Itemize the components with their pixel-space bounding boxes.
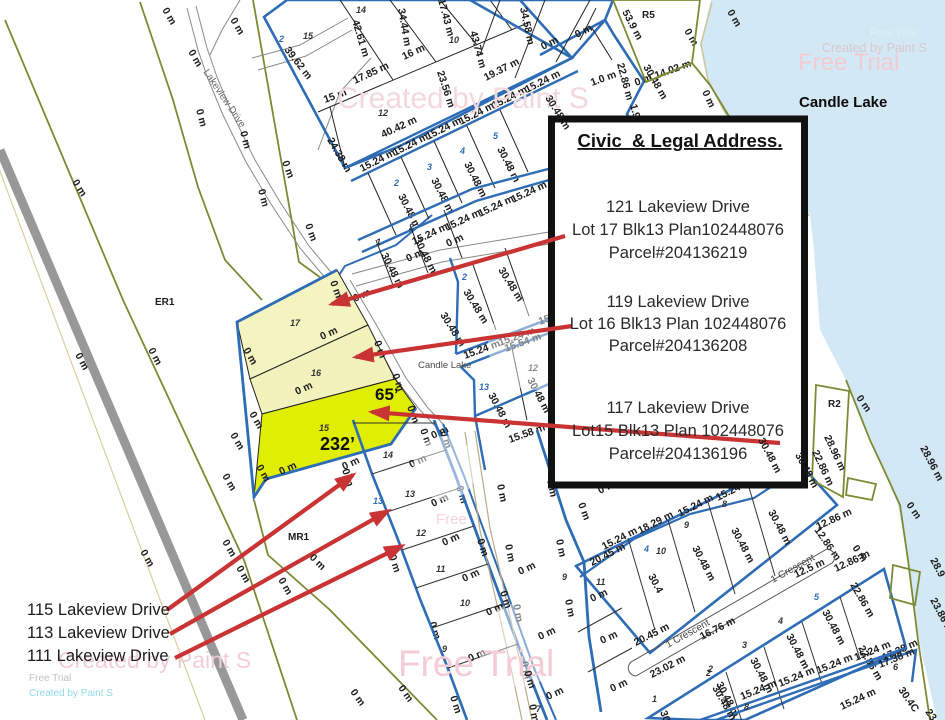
svg-text:111 Lakeview Drive: 111 Lakeview Drive xyxy=(27,647,169,665)
svg-text:Free Trial: Free Trial xyxy=(798,49,899,76)
svg-text:Created by Paint S: Created by Paint S xyxy=(29,688,113,699)
svg-text:117 Lakeview Drive: 117 Lakeview Drive xyxy=(607,399,750,417)
svg-text:R2: R2 xyxy=(828,399,841,410)
svg-text:Lot 17 Blk13 Plan102448076: Lot 17 Blk13 Plan102448076 xyxy=(572,221,784,239)
svg-text:Free Trial: Free Trial xyxy=(870,27,916,39)
svg-text:R5: R5 xyxy=(642,10,655,21)
svg-text:Candle Lake: Candle Lake xyxy=(799,94,887,111)
svg-text:10: 10 xyxy=(460,598,470,608)
svg-text:232’: 232’ xyxy=(320,434,355,454)
svg-text:4: 4 xyxy=(643,544,649,554)
svg-text:115 Lakeview Drive: 115 Lakeview Drive xyxy=(27,601,170,619)
svg-text:10: 10 xyxy=(656,546,666,556)
svg-text:MR1: MR1 xyxy=(288,532,310,543)
svg-text:3: 3 xyxy=(427,162,432,172)
svg-text:13: 13 xyxy=(373,496,383,506)
svg-text:15: 15 xyxy=(303,31,314,41)
svg-text:13: 13 xyxy=(405,489,415,499)
svg-text:14: 14 xyxy=(356,5,366,15)
svg-text:1: 1 xyxy=(652,694,657,704)
svg-text:12: 12 xyxy=(416,528,426,538)
svg-text:1: 1 xyxy=(376,237,381,247)
svg-text:11: 11 xyxy=(436,564,445,574)
svg-text:13: 13 xyxy=(479,382,489,392)
svg-text:Parcel#204136219: Parcel#204136219 xyxy=(609,244,748,262)
svg-text:Civic & Legal Address.: Civic & Legal Address. xyxy=(578,130,783,151)
svg-text:9: 9 xyxy=(562,572,567,582)
svg-text:Candle Lake: Candle Lake xyxy=(418,360,471,371)
svg-text:17: 17 xyxy=(290,318,301,328)
svg-text:2: 2 xyxy=(705,668,711,678)
svg-text:4: 4 xyxy=(777,616,783,626)
svg-text:Lot 16 Blk13 Plan 102448076: Lot 16 Blk13 Plan 102448076 xyxy=(570,315,787,333)
svg-text:11: 11 xyxy=(596,577,605,587)
svg-text:119 Lakeview Drive: 119 Lakeview Drive xyxy=(607,293,750,311)
svg-text:Lot15 Blk13 Plan 102448076: Lot15 Blk13 Plan 102448076 xyxy=(572,422,784,440)
svg-text:Free: Free xyxy=(436,511,467,528)
svg-text:121 Lakeview Drive: 121 Lakeview Drive xyxy=(606,198,750,216)
svg-text:4: 4 xyxy=(459,146,465,156)
svg-text:15: 15 xyxy=(319,423,330,433)
svg-text:Parcel#204136208: Parcel#204136208 xyxy=(609,337,748,355)
svg-text:2: 2 xyxy=(393,178,399,188)
svg-text:113 Lakeview Drive: 113 Lakeview Drive xyxy=(27,624,170,642)
svg-text:2: 2 xyxy=(278,34,284,44)
svg-text:8: 8 xyxy=(744,702,749,712)
svg-text:3: 3 xyxy=(742,640,747,650)
svg-text:Free Trial: Free Trial xyxy=(29,673,71,684)
svg-text:16: 16 xyxy=(311,368,322,378)
svg-text:2: 2 xyxy=(408,222,414,232)
svg-text:2: 2 xyxy=(461,272,467,282)
svg-text:9: 9 xyxy=(684,520,689,530)
svg-text:10: 10 xyxy=(449,35,459,45)
svg-text:14: 14 xyxy=(383,450,393,460)
svg-text:ER1: ER1 xyxy=(155,297,175,308)
svg-text:8: 8 xyxy=(722,499,727,509)
svg-text:Parcel#204136196: Parcel#204136196 xyxy=(609,445,748,463)
